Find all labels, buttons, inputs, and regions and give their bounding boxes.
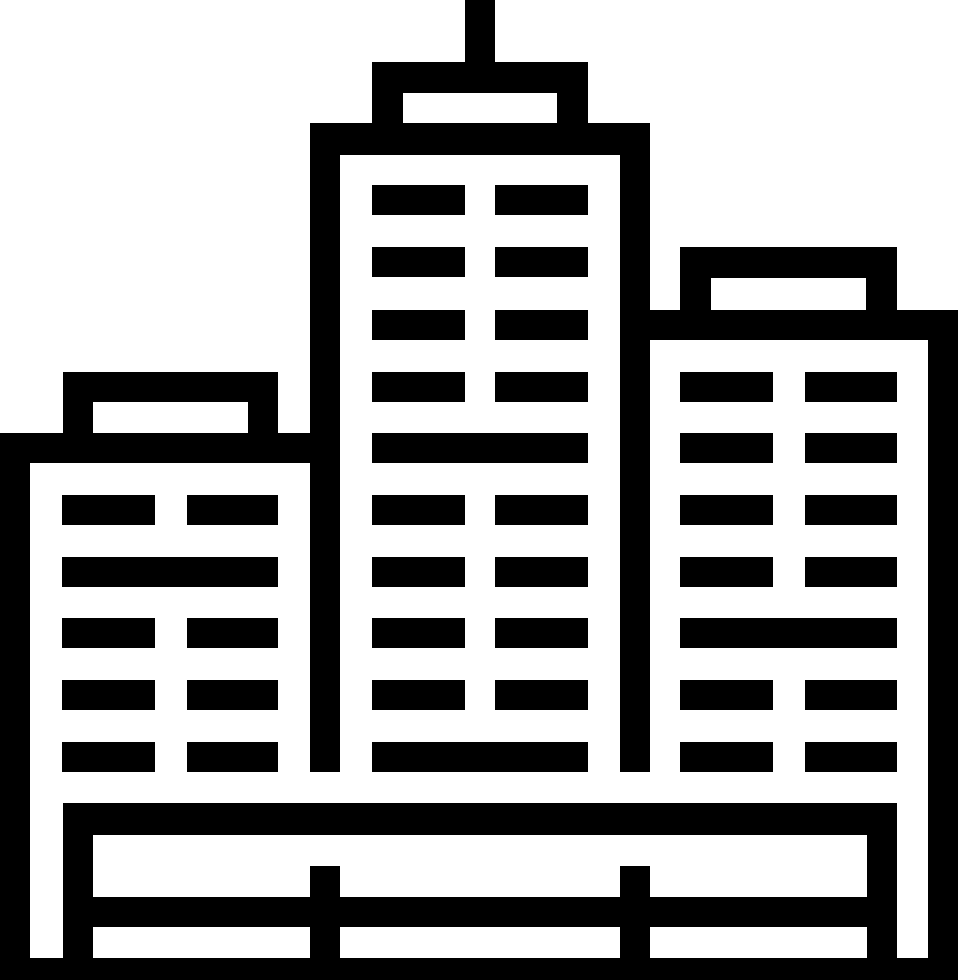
left-building-windows [62,495,278,772]
base-platform [0,803,958,980]
right-building-wall [928,340,958,980]
center-building-windows [372,185,588,772]
center-building-walls [310,155,650,772]
center-building-cap [372,62,588,123]
left-building-roof [0,433,310,463]
right-building-windows [680,372,897,772]
center-building-roof [310,123,650,155]
antenna [465,0,495,62]
left-building-cap [63,372,278,433]
right-building-cap [680,247,897,310]
left-building-wall [0,463,30,980]
city-buildings-icon-svg [0,0,960,980]
city-buildings-icon [0,0,960,980]
right-building-roof [620,310,958,340]
